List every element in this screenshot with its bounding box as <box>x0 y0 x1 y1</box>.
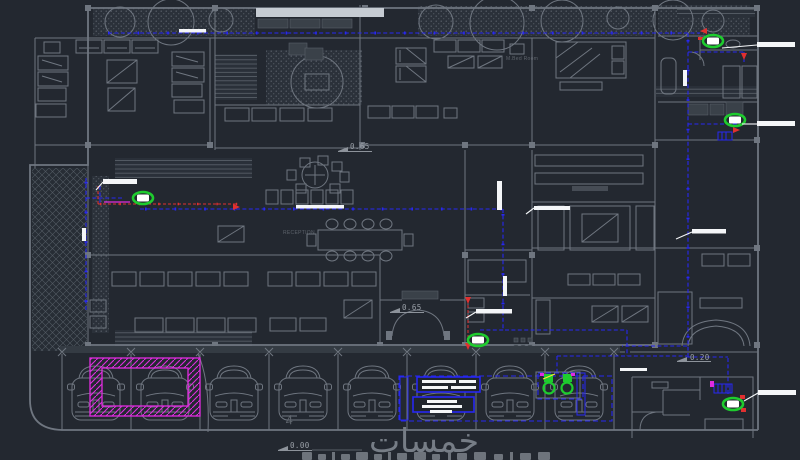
level-label: 0.00 <box>290 441 310 450</box>
water-pumps-symbol <box>536 372 580 398</box>
water-heater-icon <box>703 35 723 47</box>
legend-box-2 <box>413 397 474 413</box>
junction-symbols <box>714 132 732 393</box>
garden-hatch-areas <box>32 5 758 351</box>
stall-number-label: 4 <box>284 412 294 428</box>
water-heater-icon <box>723 398 743 410</box>
cropped-logo-text <box>302 452 550 460</box>
room-label-master-bed: M.Bed Room <box>506 56 538 62</box>
room-label-reception: RECEPTION <box>283 230 315 236</box>
cad-canvas: 4 <box>0 0 800 460</box>
water-heater-icon <box>133 192 153 204</box>
roof-beam <box>256 8 384 17</box>
legend-box-1 <box>417 377 480 392</box>
magenta-highlight-rect <box>90 358 200 416</box>
floor-plan-drawing: 4 <box>0 0 800 460</box>
pump-detail-zone <box>399 372 612 421</box>
conduit-network <box>86 28 747 412</box>
level-label: 0.65 <box>402 303 422 312</box>
walls <box>30 5 760 438</box>
level-label: 0.20 <box>690 353 710 362</box>
level-label: 0.65 <box>350 142 370 151</box>
entrance-door <box>386 291 450 340</box>
level-markers: 0.65 0.65 0.00 0.20 <box>278 142 711 451</box>
